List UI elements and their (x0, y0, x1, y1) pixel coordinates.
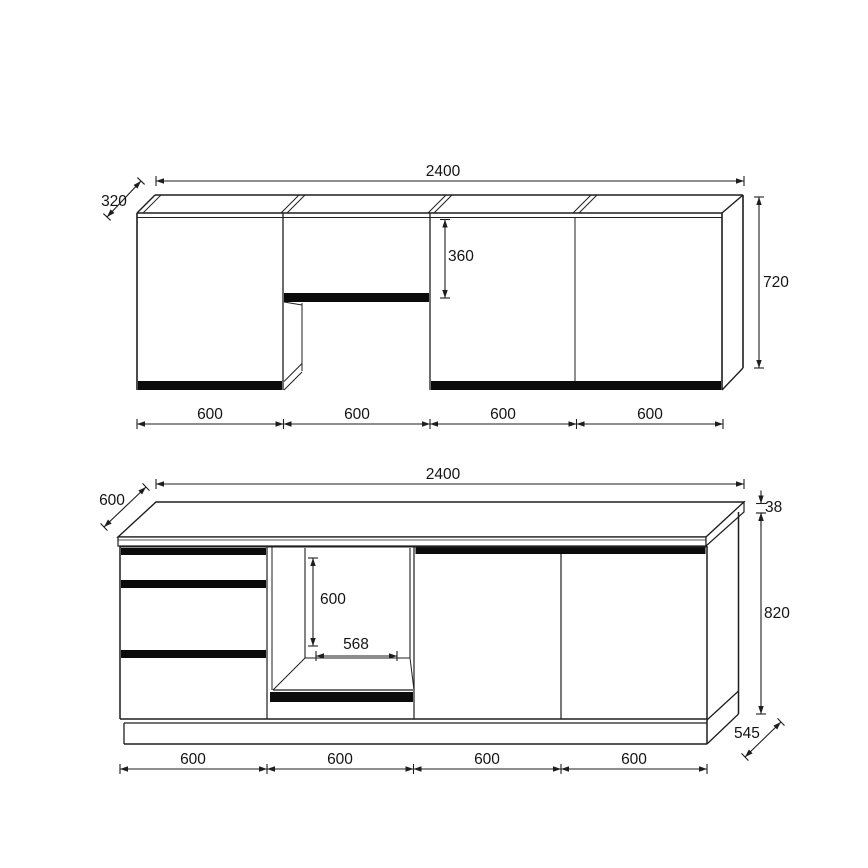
dim-base-section-2: 600 (310, 751, 370, 768)
dim-base-niche-width: 568 (330, 636, 382, 653)
dim-upper-depth: 320 (94, 193, 134, 210)
dim-base-section-3: 600 (457, 751, 517, 768)
dim-upper-section-2: 600 (327, 406, 387, 423)
dim-base-niche-height: 600 (320, 591, 364, 608)
dim-upper-total-width: 2400 (406, 163, 480, 180)
base-cabinet-drawing (101, 479, 785, 774)
dim-base-section-1: 600 (163, 751, 223, 768)
dim-base-total-width: 2400 (406, 466, 480, 483)
cabinet-drawing-page: 2400 320 360 720 600 600 600 600 2400 60… (0, 0, 868, 868)
dim-upper-section-3: 600 (473, 406, 533, 423)
dim-upper-flap-height: 360 (448, 248, 488, 265)
dim-base-worktop-thickness: 38 (765, 499, 797, 516)
upper-cabinet-drawing (103, 176, 764, 429)
dim-upper-height: 720 (763, 274, 803, 291)
dim-upper-section-1: 600 (180, 406, 240, 423)
dim-base-plinth-depth: 545 (734, 725, 778, 742)
dim-base-section-4: 600 (604, 751, 664, 768)
dim-base-height: 820 (764, 605, 804, 622)
dim-upper-section-4: 600 (620, 406, 680, 423)
dim-base-worktop-depth: 600 (92, 492, 132, 509)
